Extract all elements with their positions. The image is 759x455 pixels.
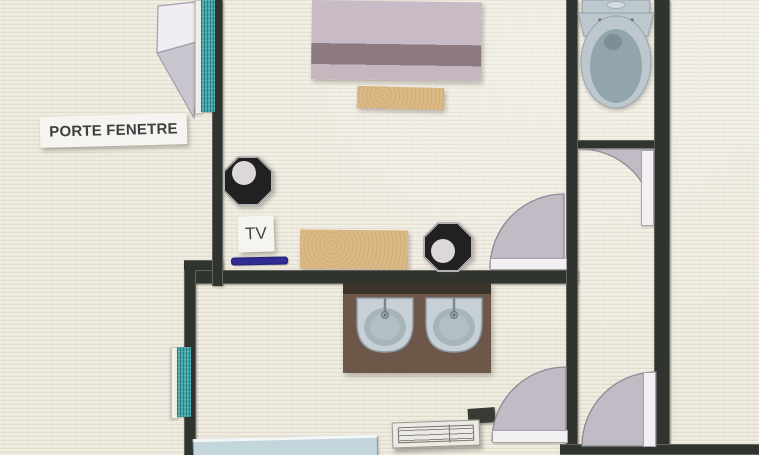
bathtub-icon (193, 435, 379, 455)
floor-vent-grate-icon (392, 419, 481, 448)
vent-slats (398, 425, 475, 444)
bed-icon (311, 0, 482, 81)
tv-label: TV (237, 215, 274, 252)
entrance-door-leaf (643, 372, 656, 447)
bathroom-window-strip (177, 347, 191, 417)
sink-left-icon (354, 295, 416, 357)
tv-stand-bar (231, 257, 288, 266)
toilet-icon (575, 0, 657, 110)
octagon-side-table-right-icon (421, 220, 475, 274)
bed-foot-bench (357, 86, 445, 110)
tv-label-text: TV (245, 224, 267, 245)
floor-plan-canvas: PORTE FENETRE TV (0, 0, 759, 455)
porte-fenetre-label: PORTE FENETRE (40, 113, 188, 148)
bathroom-top-wall (184, 270, 578, 284)
bedroom-door-leaf (490, 258, 567, 270)
wc-door-leaf (641, 150, 654, 226)
octagon-side-table-left-icon (221, 154, 275, 208)
credenza-bench (300, 230, 408, 270)
bedroom-window-strip (201, 0, 215, 112)
bathroom-door-leaf (492, 430, 568, 443)
sink-right-icon (423, 295, 485, 357)
porte-fenetre-label-text: PORTE FENETRE (49, 120, 178, 140)
